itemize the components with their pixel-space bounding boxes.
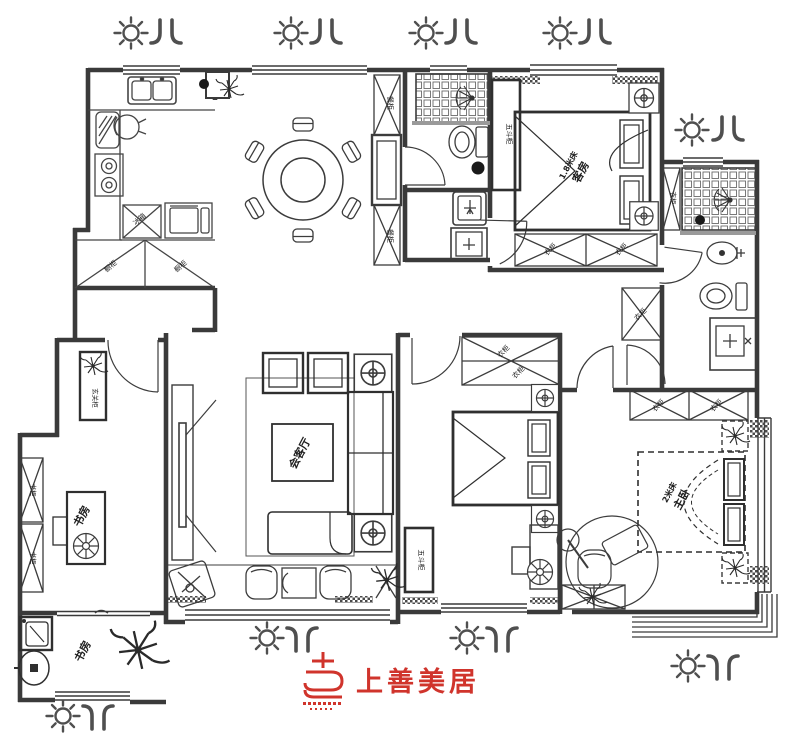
- sun-icon: [676, 115, 709, 146]
- wardrobe-label: 衣柜: [542, 241, 558, 257]
- brand-logo-dots: [303, 702, 341, 710]
- utility-room: [14, 617, 52, 685]
- airflow-icon: [311, 20, 341, 43]
- airflow-icon: [487, 628, 517, 651]
- wardrobe-label: 衣柜: [669, 192, 678, 206]
- brand-logo: 上善美居: [303, 652, 480, 710]
- nightstand: [630, 202, 659, 231]
- sun-icon: [275, 18, 308, 49]
- wardrobe-label: 衣柜: [708, 397, 724, 413]
- airflow-icon: [446, 20, 476, 43]
- five-drawer-chest-label: 五斗柜: [417, 550, 426, 571]
- sun-icon: [672, 651, 705, 682]
- brand-logo-text: 上善美居: [356, 666, 480, 698]
- plant-icon: [722, 422, 750, 445]
- wardrobe-label: 衣柜: [510, 364, 526, 380]
- bedroom2: [453, 412, 558, 505]
- side-table: [354, 354, 392, 392]
- five-drawer-chest-label: 五斗柜: [505, 124, 514, 145]
- nightstand: [629, 83, 659, 113]
- sun-icon: [47, 701, 80, 732]
- master-desk-area: [557, 516, 658, 608]
- dining-cabinet-label: 餐柜: [386, 229, 395, 243]
- master-bed: [638, 452, 745, 552]
- airflow-icon: [713, 117, 743, 140]
- entry-cabinet-label: 玄关柜: [91, 388, 100, 408]
- plant-icon: [722, 554, 750, 577]
- sun-icon: [410, 18, 443, 49]
- airflow-icon: [580, 20, 610, 43]
- guest-bathroom: [412, 74, 490, 260]
- armchairs: [263, 353, 348, 393]
- coffee-table: 会客厅: [272, 424, 333, 481]
- study-label: 书房: [70, 503, 93, 529]
- sun-icon: [115, 18, 148, 49]
- sun-icon: [251, 623, 284, 654]
- bookcase-label: 书柜: [29, 552, 38, 566]
- sun-icon: [451, 623, 484, 654]
- master-nightstands: [722, 421, 748, 583]
- bookcases: [20, 458, 43, 592]
- nightstand: [532, 506, 559, 533]
- wardrobe-label: 衣柜: [650, 397, 666, 413]
- guest-wardrobe: [515, 234, 657, 266]
- tv-wall: [172, 385, 216, 560]
- master-room-label: 2米床 主卧: [660, 480, 694, 512]
- master-wardrobe: [630, 390, 748, 420]
- nightstand: [532, 385, 559, 412]
- kitchen: [75, 77, 215, 288]
- floor-plan-page: 冰箱 橱柜 橱柜 餐柜 餐柜 五斗柜 衣柜 衣柜 1.8米床 客房: [0, 0, 785, 740]
- desk-chair: [528, 560, 553, 585]
- dining-cabinet-label: 餐柜: [386, 96, 395, 110]
- sun-icon: [544, 18, 577, 49]
- entry-cabinet: 玄关柜: [80, 352, 106, 420]
- airflow-icon: [287, 628, 317, 651]
- hood-dot: [199, 79, 209, 89]
- wardrobe-label: 衣柜: [495, 343, 511, 359]
- floor-plan-canvas: 冰箱 橱柜 橱柜 餐柜 餐柜 五斗柜 衣柜 衣柜 1.8米床 客房: [0, 0, 785, 740]
- utility-study-label: 书房: [71, 638, 94, 664]
- brand-logo-mark: [305, 652, 342, 697]
- desk-chair: [74, 534, 99, 559]
- side-table: [354, 514, 392, 552]
- dining-room: [244, 118, 362, 242]
- base-cabinets: [75, 240, 215, 288]
- hall-wardrobe: [462, 337, 560, 385]
- airflow-icon: [83, 706, 113, 729]
- airflow-icon: [708, 656, 738, 679]
- wardrobe-label: 衣柜: [613, 241, 629, 257]
- bookcase-label: 书柜: [29, 484, 38, 498]
- stove: [95, 154, 123, 196]
- airflow-icon: [151, 20, 181, 43]
- large-plant-icon: [111, 621, 170, 669]
